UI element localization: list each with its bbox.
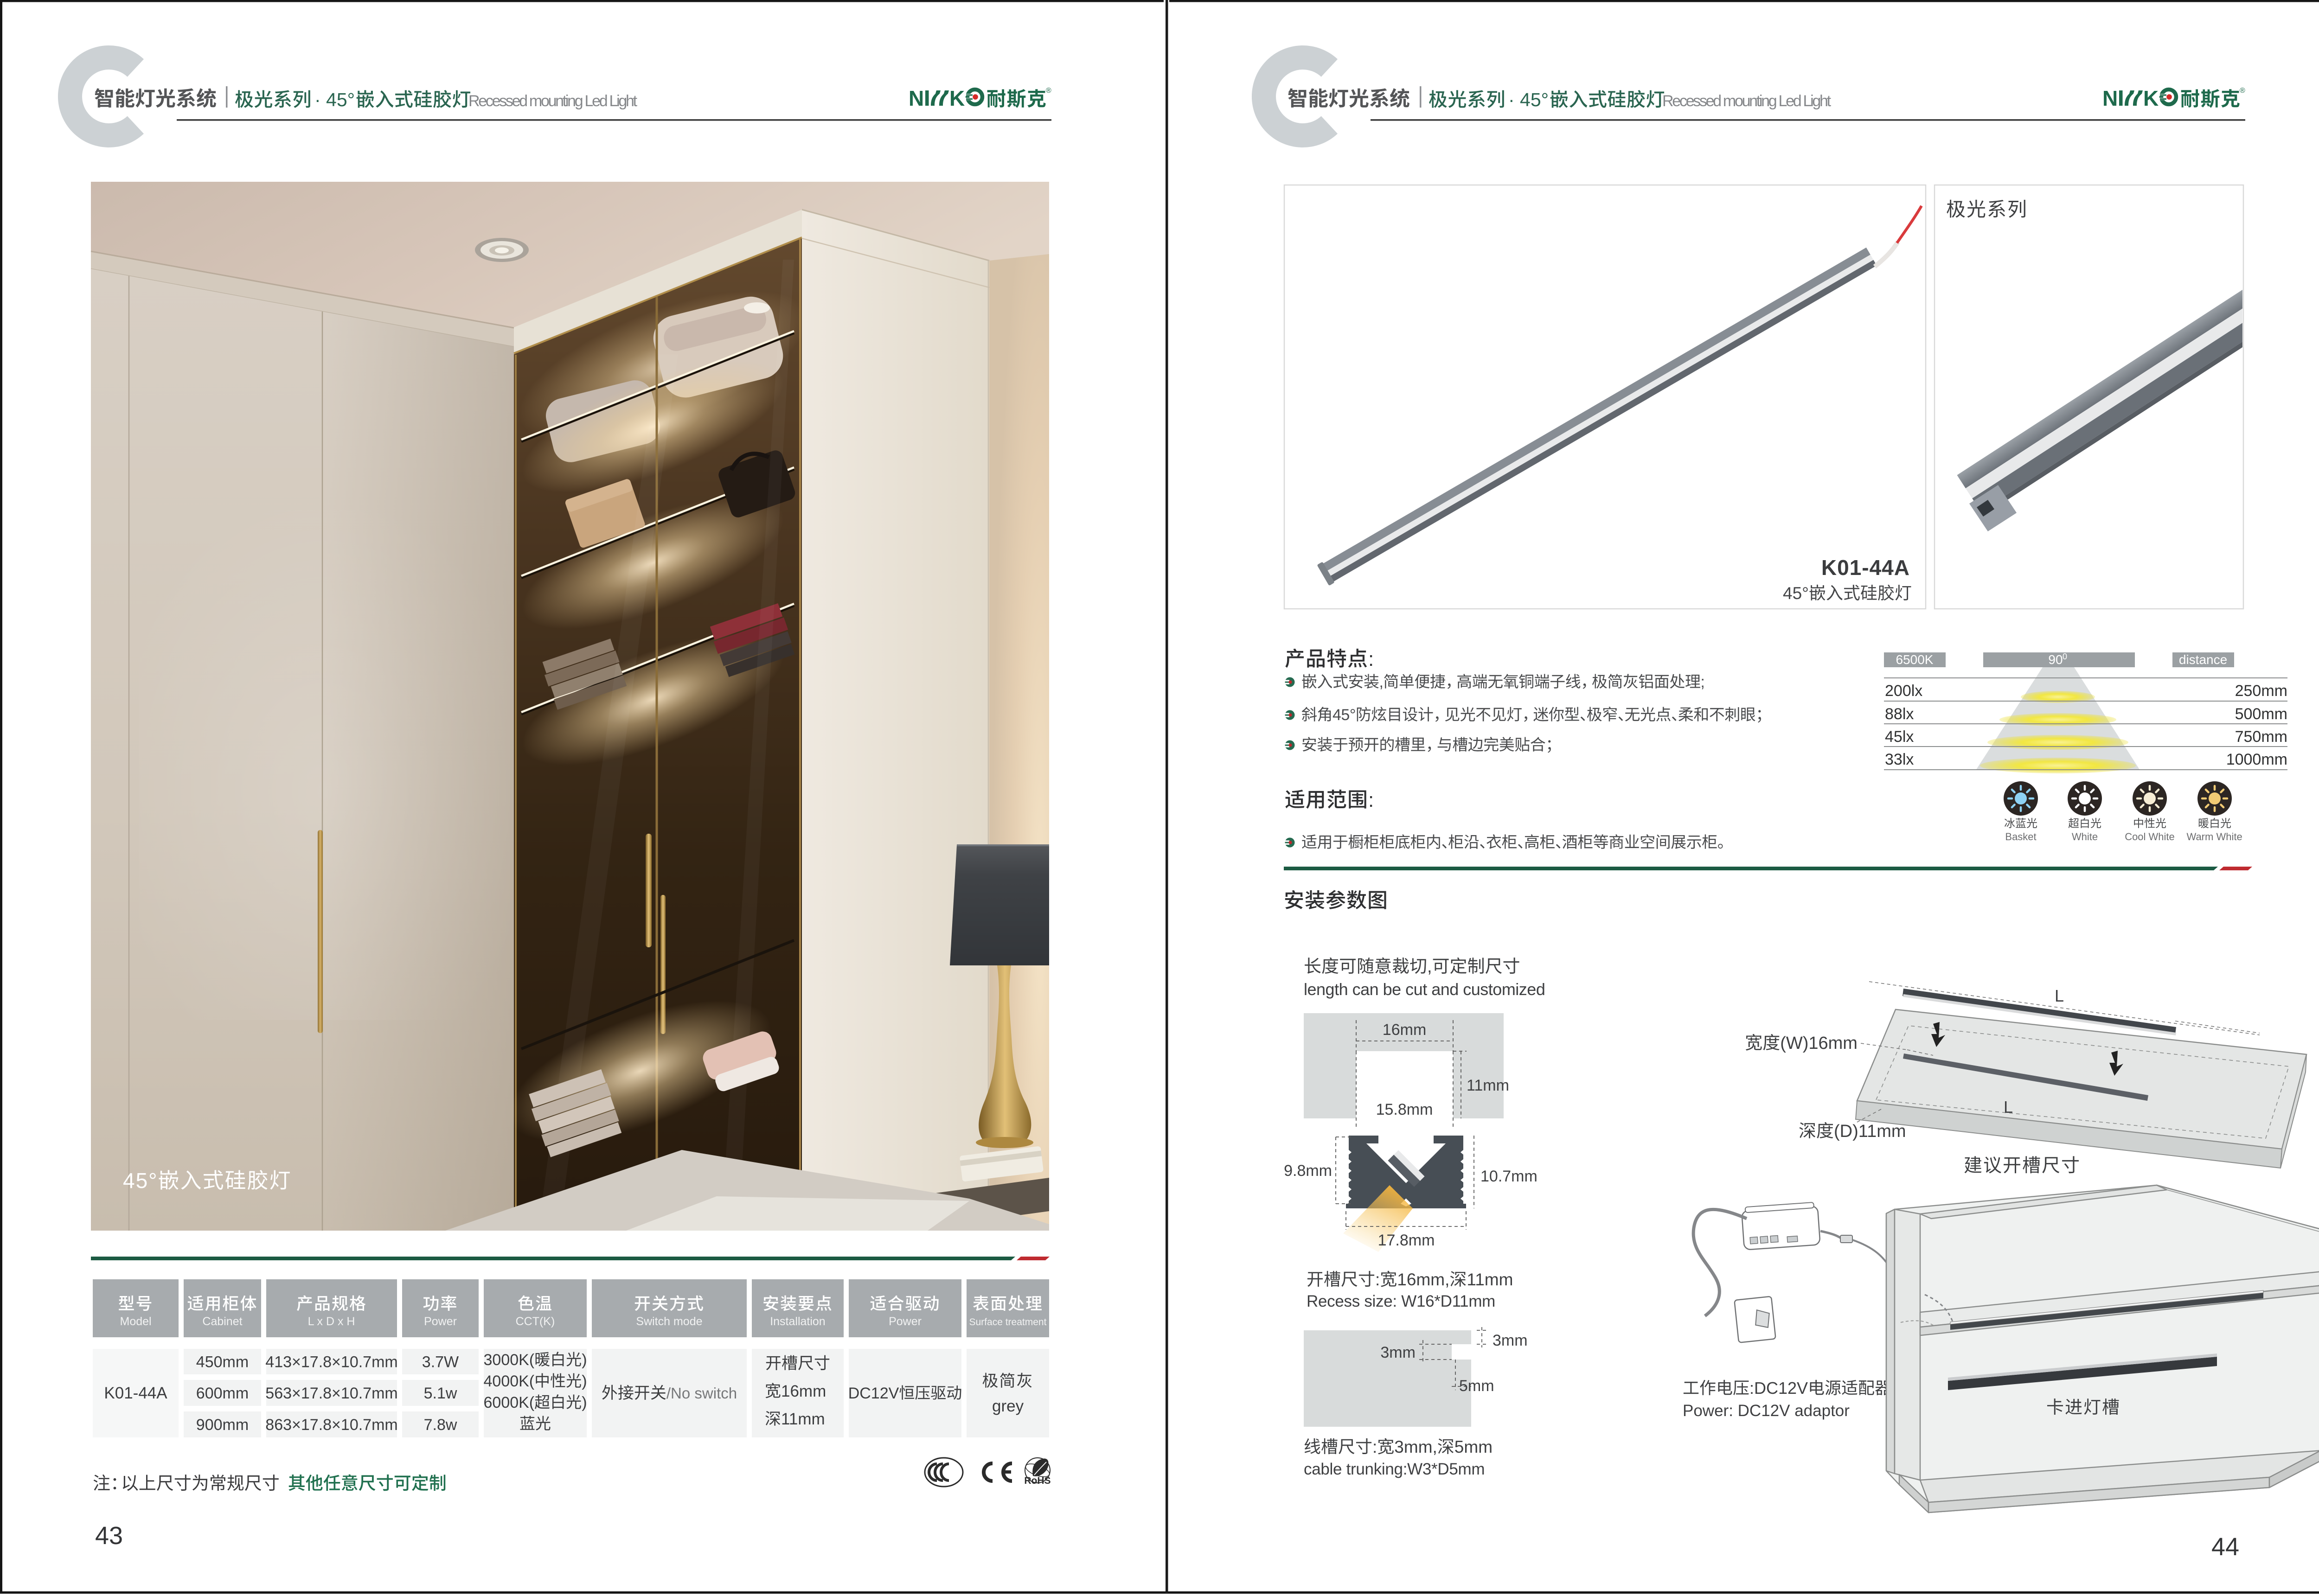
svg-text:5mm: 5mm — [1459, 1377, 1494, 1395]
svg-text:250mm: 250mm — [2235, 682, 2287, 700]
svg-text:600mm: 600mm — [196, 1385, 249, 1402]
svg-text:16mm,: 16mm, — [1397, 1270, 1449, 1289]
svg-text:45°: 45° — [1783, 584, 1809, 603]
svg-text:K01-44A: K01-44A — [1821, 555, 1910, 580]
svg-text:Power: Power — [889, 1315, 922, 1328]
svg-text:450mm: 450mm — [196, 1353, 249, 1371]
svg-text:200lx: 200lx — [1885, 682, 1922, 700]
svg-text:11mm: 11mm — [781, 1410, 825, 1428]
svg-text:45lx: 45lx — [1885, 728, 1914, 746]
svg-text:6500K: 6500K — [1896, 652, 1934, 667]
svg-text:Warm White: Warm White — [2187, 831, 2242, 843]
svg-text:RoHS: RoHS — [1024, 1475, 1051, 1486]
svg-text:3mm,: 3mm, — [1394, 1437, 1437, 1456]
svg-text:· 45°: · 45° — [314, 89, 355, 110]
svg-text:L x D x H: L x D x H — [308, 1315, 355, 1328]
svg-text:3000K(: 3000K( — [484, 1351, 535, 1369]
svg-text:3mm: 3mm — [1380, 1344, 1416, 1361]
svg-text:®: ® — [2240, 87, 2245, 95]
svg-text:®: ® — [1046, 87, 1051, 95]
svg-text:· 45°: · 45° — [1508, 89, 1549, 110]
svg-text::DC12V: :DC12V — [1749, 1379, 1808, 1398]
svg-text::: : — [1372, 1437, 1377, 1456]
svg-text:,: , — [1379, 673, 1384, 691]
svg-text:K01-44A: K01-44A — [104, 1384, 167, 1402]
svg-text:45°: 45° — [1332, 706, 1356, 724]
svg-text::: : — [1375, 1270, 1380, 1289]
svg-text:750mm: 750mm — [2235, 728, 2287, 746]
svg-text:Recessed mounting Led Light: Recessed mounting Led Light — [1662, 92, 1832, 110]
svg-text:): ) — [582, 1373, 587, 1390]
svg-text:distance: distance — [2179, 652, 2227, 667]
svg-text:): ) — [582, 1394, 587, 1411]
svg-text:Basket: Basket — [2005, 831, 2036, 843]
svg-text:K: K — [949, 86, 965, 110]
svg-text:N: N — [909, 86, 924, 110]
svg-text:90: 90 — [2048, 652, 2063, 667]
svg-text:563×17.8×10.7mm: 563×17.8×10.7mm — [265, 1385, 397, 1402]
svg-text:863×17.8×10.7mm: 863×17.8×10.7mm — [265, 1416, 397, 1434]
svg-text:): ) — [582, 1351, 587, 1369]
svg-text:5.1w: 5.1w — [424, 1385, 457, 1402]
svg-text:(W)16mm: (W)16mm — [1780, 1034, 1858, 1053]
svg-text:413×17.8×10.7mm: 413×17.8×10.7mm — [265, 1353, 397, 1371]
svg-text:DC12V: DC12V — [848, 1385, 899, 1402]
svg-text:Switch mode: Switch mode — [636, 1315, 702, 1328]
svg-text:900mm: 900mm — [196, 1416, 249, 1434]
svg-text:10.7mm: 10.7mm — [1480, 1168, 1537, 1185]
svg-text:Cabinet: Cabinet — [202, 1315, 242, 1328]
svg-text:44: 44 — [2211, 1533, 2239, 1561]
svg-text:3.7W: 3.7W — [422, 1353, 459, 1371]
svg-text:L: L — [2055, 986, 2064, 1005]
svg-text:11mm: 11mm — [1467, 1270, 1513, 1289]
svg-text:grey: grey — [992, 1397, 1024, 1415]
svg-text:88lx: 88lx — [1885, 705, 1914, 723]
svg-text:6000K(: 6000K( — [484, 1394, 535, 1411]
svg-text:Power: DC12V adaptor: Power: DC12V adaptor — [1683, 1402, 1850, 1420]
svg-text:;: ; — [1700, 673, 1704, 691]
svg-text:CCT(K): CCT(K) — [516, 1315, 555, 1328]
svg-text:16mm: 16mm — [1383, 1021, 1426, 1039]
svg-text:4000K(: 4000K( — [484, 1373, 535, 1390]
svg-text:Cool White: Cool White — [2125, 831, 2175, 843]
svg-text:length can be cut and customiz: length can be cut and customized — [1304, 980, 1545, 999]
svg-text:11mm: 11mm — [1467, 1077, 1509, 1094]
svg-text:0: 0 — [2063, 652, 2067, 661]
svg-text:Power: Power — [424, 1315, 457, 1328]
svg-text:Installation: Installation — [770, 1315, 826, 1328]
svg-text:15.8mm: 15.8mm — [1376, 1101, 1433, 1118]
svg-text:cable trunking:W3*D5mm: cable trunking:W3*D5mm — [1304, 1460, 1485, 1478]
svg-text:5mm: 5mm — [1454, 1437, 1493, 1456]
svg-text:L: L — [2004, 1098, 2013, 1117]
svg-text:3mm: 3mm — [1493, 1332, 1528, 1349]
svg-text:1000mm: 1000mm — [2226, 751, 2287, 768]
svg-text:Recess size: W16*D11mm: Recess size: W16*D11mm — [1307, 1292, 1495, 1310]
svg-text:N: N — [2102, 86, 2118, 110]
svg-text:7.8w: 7.8w — [424, 1416, 457, 1434]
svg-text:43: 43 — [95, 1522, 123, 1550]
svg-text:9.8mm: 9.8mm — [1284, 1162, 1332, 1180]
svg-text:(D)11mm: (D)11mm — [1834, 1122, 1906, 1141]
svg-text::: : — [1368, 789, 1374, 811]
svg-text:33lx: 33lx — [1885, 751, 1914, 768]
svg-text:K: K — [2143, 86, 2159, 110]
svg-text:500mm: 500mm — [2235, 705, 2287, 723]
svg-text:Model: Model — [120, 1315, 152, 1328]
svg-text:45°: 45° — [123, 1168, 158, 1193]
svg-text:Surface treatment: Surface treatment — [969, 1317, 1047, 1328]
svg-text:Recessed mounting Led Light: Recessed mounting Led Light — [468, 92, 638, 110]
svg-text:,: , — [1427, 957, 1432, 977]
svg-text:/No switch: /No switch — [666, 1385, 737, 1402]
svg-text:17.8mm: 17.8mm — [1378, 1232, 1435, 1249]
svg-text:16mm: 16mm — [781, 1382, 826, 1400]
svg-text:White: White — [2072, 831, 2098, 843]
svg-text::: : — [1368, 648, 1374, 670]
